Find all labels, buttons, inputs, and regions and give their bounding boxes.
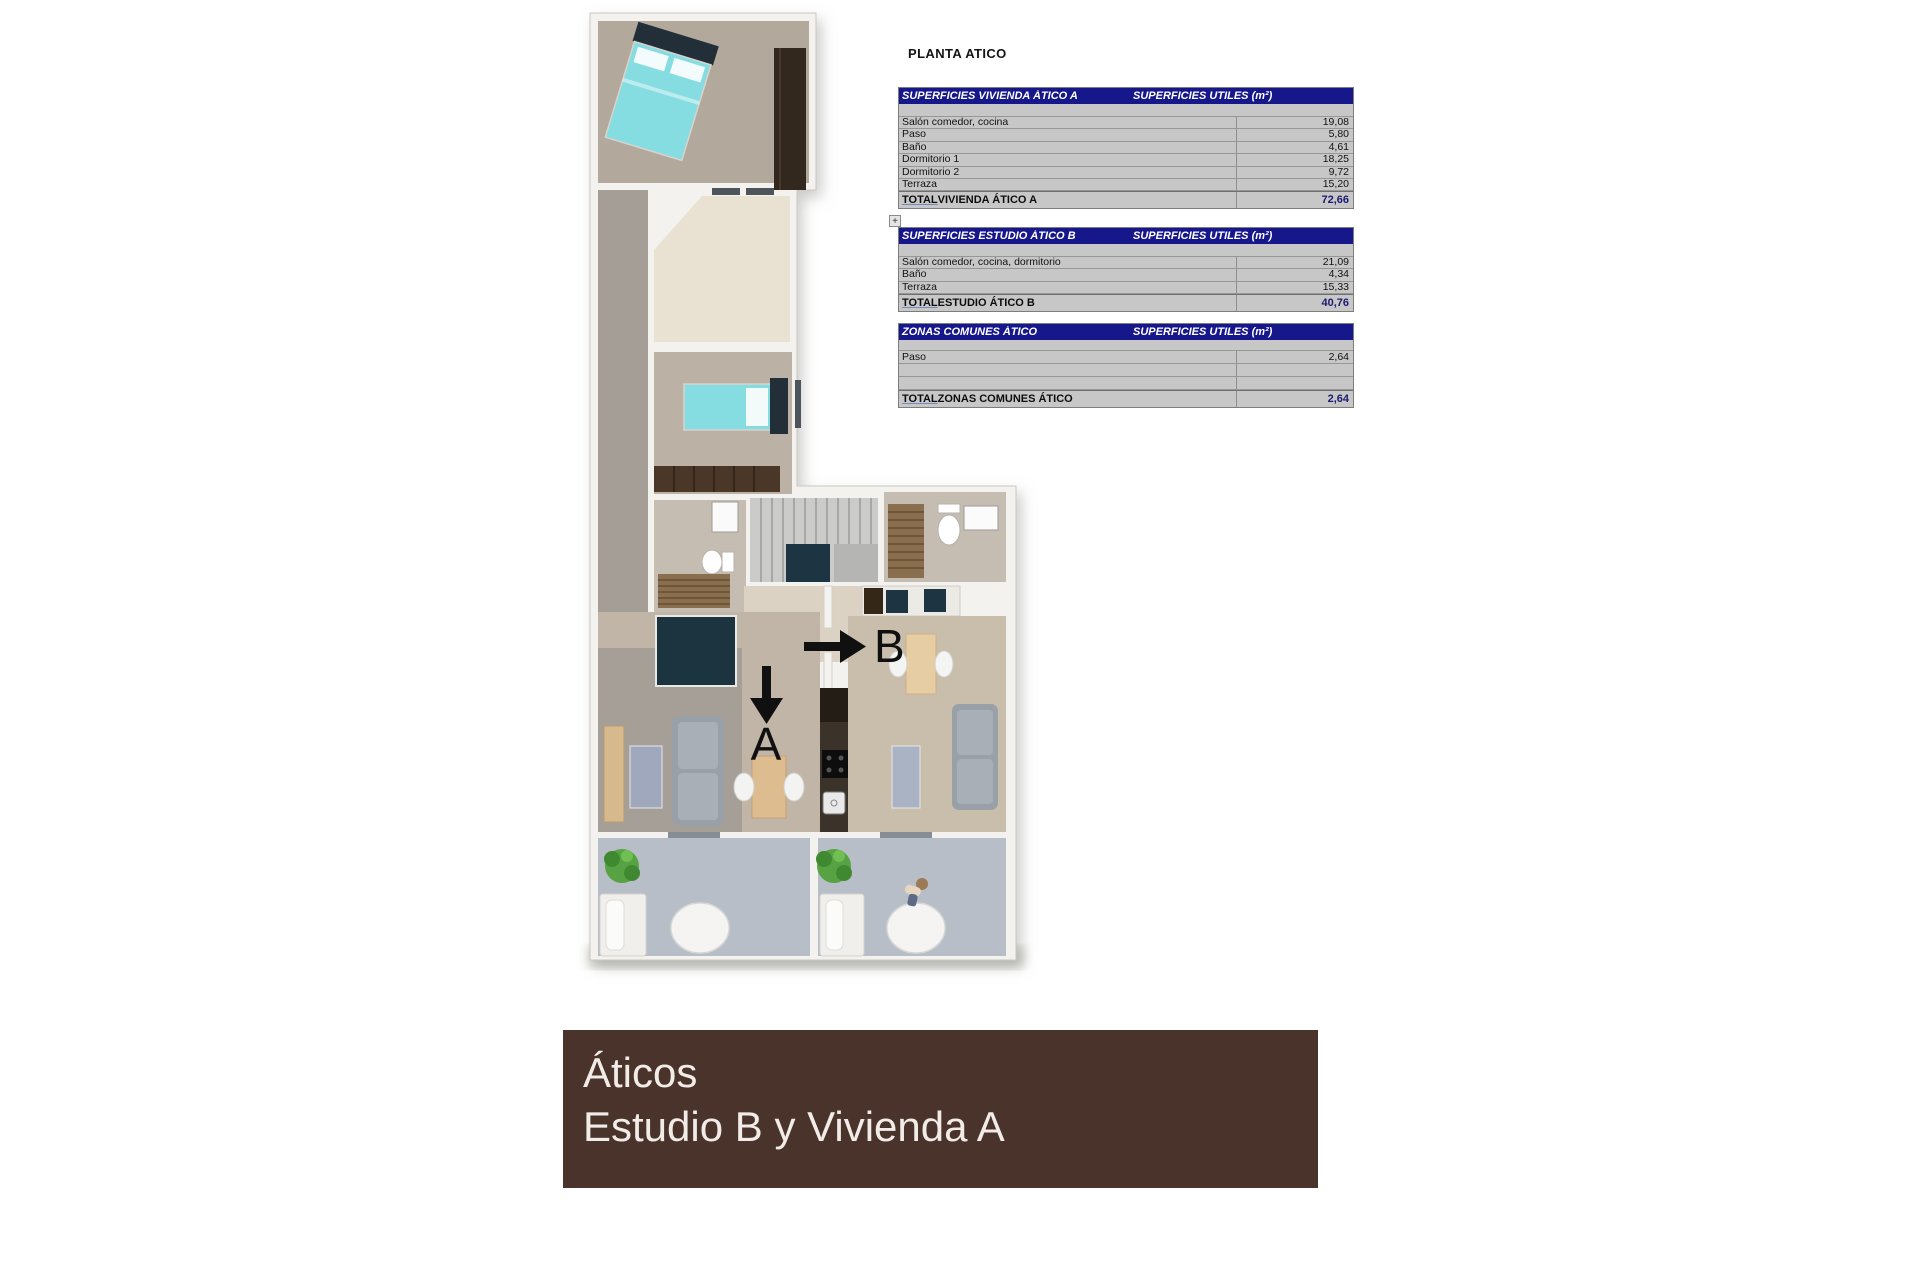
- row-value: 4,34: [1236, 269, 1353, 280]
- window-icon: [795, 380, 801, 428]
- lounge-chair-icon: [820, 894, 864, 956]
- person-figure: [904, 878, 928, 907]
- row-value: 4,61: [1236, 142, 1353, 153]
- row-value: [1236, 364, 1353, 376]
- total-rest: ESTUDIO ÁTICO B: [938, 297, 1035, 309]
- bathroom-a: [654, 500, 746, 612]
- row-value: [1236, 377, 1353, 389]
- terrace-right: [816, 832, 1006, 956]
- row-label: Baño: [899, 142, 1236, 153]
- area-table-zonas-comunes: ZONAS COMUNES ÁTICO SUPERFICIES UTILES (…: [898, 323, 1354, 408]
- table-header: SUPERFICIES VIVIENDA ÁTICO A SUPERFICIES…: [899, 88, 1353, 104]
- living-room-a: [598, 612, 820, 832]
- banner-line-2: Estudio B y Vivienda A: [583, 1100, 1318, 1154]
- area-table-vivienda-a: SUPERFICIES VIVIENDA ÁTICO A SUPERFICIES…: [898, 87, 1354, 209]
- arrow-a-icon: [750, 666, 783, 724]
- row-value: 15,20: [1236, 179, 1353, 190]
- table-row: Salón comedor, cocina 19,08: [899, 117, 1353, 129]
- window-icon: [712, 188, 740, 195]
- toilet-icon: [938, 504, 960, 545]
- table-row: Salón comedor, cocina, dormitorio 21,09: [899, 257, 1353, 269]
- row-value: 5,80: [1236, 129, 1353, 140]
- corridor-floor: [598, 190, 648, 615]
- table-header: ZONAS COMUNES ÁTICO SUPERFICIES UTILES (…: [899, 324, 1353, 340]
- table-row: Baño 4,34: [899, 269, 1353, 281]
- row-value: 2,64: [1236, 351, 1353, 363]
- dining-table-icon: [734, 756, 804, 818]
- total-word: TOTAL: [902, 194, 938, 206]
- row-label: Paso: [899, 351, 1236, 363]
- row-value: 15,33: [1236, 282, 1353, 293]
- table-row: Dormitorio 1 18,25: [899, 154, 1353, 166]
- table-title: ZONAS COMUNES ÁTICO: [899, 326, 1133, 338]
- row-value: 9,72: [1236, 167, 1353, 178]
- living-room-b: [848, 616, 1006, 832]
- kitchen-island: [656, 616, 736, 686]
- units-header: SUPERFICIES UTILES (m²): [1133, 90, 1353, 102]
- table-title: SUPERFICIES ESTUDIO ÁTICO B: [899, 230, 1133, 242]
- row-value: 19,08: [1236, 117, 1353, 128]
- shelf-unit: [862, 586, 960, 616]
- row-label: [899, 364, 1236, 376]
- total-rest: VIVIENDA ÁTICO A: [938, 194, 1037, 206]
- round-table-icon: [671, 903, 729, 953]
- single-bed-icon: [684, 378, 788, 434]
- total-value: 72,66: [1236, 192, 1353, 208]
- page: B A PLANTA ATICO SUPERFICIES VIVIENDA ÁT…: [0, 0, 1920, 1280]
- bathroom-b: [884, 492, 1006, 582]
- row-label: Salón comedor, cocina, dormitorio: [899, 257, 1236, 268]
- dining-table-icon: [889, 634, 953, 694]
- sink-icon: [964, 506, 998, 530]
- terrace-left: [598, 832, 810, 956]
- round-table-icon: [887, 903, 945, 953]
- shower-icon: [888, 504, 924, 578]
- table-title: SUPERFICIES VIVIENDA ÁTICO A: [899, 90, 1133, 102]
- stair-void: [786, 544, 830, 582]
- row-label: Salón comedor, cocina: [899, 117, 1236, 128]
- plant-icon: [604, 849, 640, 883]
- wall-stub: [824, 586, 832, 628]
- wardrobe-icon: [654, 466, 780, 492]
- table-row: [899, 377, 1353, 390]
- sofa-icon: [952, 704, 998, 810]
- row-label: Baño: [899, 269, 1236, 280]
- rug-icon: [892, 746, 920, 808]
- total-rest: ZONAS COMUNES ÁTICO: [938, 393, 1073, 405]
- row-label: Terraza: [899, 179, 1236, 190]
- total-word: TOTAL: [902, 297, 938, 309]
- shower-icon: [658, 574, 730, 608]
- row-label: Paso: [899, 129, 1236, 140]
- door-icon: [668, 832, 720, 838]
- window-icon: [746, 188, 774, 195]
- project-banner: Áticos Estudio B y Vivienda A: [563, 1030, 1318, 1188]
- table-row: Paso 2,64: [899, 351, 1353, 364]
- total-word: TOTAL: [902, 393, 938, 405]
- sideboard-icon: [604, 726, 624, 822]
- units-header: SUPERFICIES UTILES (m²): [1133, 326, 1353, 338]
- total-row: TOTAL VIVIENDA ÁTICO A 72,66: [899, 191, 1353, 208]
- cabinet-icon: [852, 714, 872, 810]
- banner-line-1: Áticos: [583, 1046, 1318, 1100]
- total-row: TOTAL ZONAS COMUNES ÁTICO 2,64: [899, 390, 1353, 407]
- wardrobe-icon: [774, 48, 806, 190]
- rug-icon: [630, 746, 662, 808]
- room-dormitorio-2: [654, 352, 801, 494]
- area-table-estudio-b: SUPERFICIES ESTUDIO ÁTICO B SUPERFICIES …: [898, 227, 1354, 312]
- total-value: 40,76: [1236, 295, 1353, 311]
- table-row: [899, 364, 1353, 377]
- total-label: TOTAL ESTUDIO ÁTICO B: [899, 295, 1236, 311]
- expand-group-icon: +: [889, 215, 901, 227]
- row-label: Dormitorio 1: [899, 154, 1236, 165]
- total-label: TOTAL ZONAS COMUNES ÁTICO: [899, 391, 1236, 407]
- kitchen-sink-icon: [823, 792, 845, 814]
- total-label: TOTAL VIVIENDA ÁTICO A: [899, 192, 1236, 208]
- cooktop-icon: [822, 750, 848, 778]
- kitchen-counter: [820, 688, 872, 832]
- empty-row: [899, 104, 1353, 117]
- door-icon: [880, 832, 932, 838]
- lounge-chair-icon: [600, 894, 646, 956]
- wall-stub: [824, 652, 832, 690]
- row-label: Dormitorio 2: [899, 167, 1236, 178]
- staircase: [750, 498, 878, 582]
- room-bay: [654, 188, 790, 342]
- ground-shadow: [588, 946, 1024, 968]
- table-row: Paso 5,80: [899, 129, 1353, 141]
- table-row: Terraza 15,20: [899, 179, 1353, 191]
- empty-row: [899, 244, 1353, 257]
- unit-a-label: A: [751, 718, 782, 770]
- row-value: 21,09: [1236, 257, 1353, 268]
- row-label: [899, 377, 1236, 389]
- page-title: PLANTA ATICO: [908, 46, 1007, 61]
- table-row: Baño 4,61: [899, 142, 1353, 154]
- total-row: TOTAL ESTUDIO ÁTICO B 40,76: [899, 294, 1353, 311]
- total-value: 2,64: [1236, 391, 1353, 407]
- room-dormitorio-1: [598, 21, 809, 190]
- sink-icon: [712, 502, 738, 532]
- row-label: Terraza: [899, 282, 1236, 293]
- table-row: Terraza 15,33: [899, 282, 1353, 294]
- table-header: SUPERFICIES ESTUDIO ÁTICO B SUPERFICIES …: [899, 228, 1353, 244]
- hall-floor: [744, 586, 880, 662]
- empty-row: [899, 340, 1353, 351]
- arrow-b-icon: [804, 630, 866, 663]
- units-header: SUPERFICIES UTILES (m²): [1133, 230, 1353, 242]
- plant-icon: [816, 849, 852, 883]
- unit-b-label: B: [874, 620, 905, 672]
- row-value: 18,25: [1236, 154, 1353, 165]
- sofa-icon: [672, 716, 724, 826]
- toilet-icon: [702, 550, 734, 574]
- table-row: Dormitorio 2 9,72: [899, 167, 1353, 179]
- double-bed-icon: [603, 22, 718, 161]
